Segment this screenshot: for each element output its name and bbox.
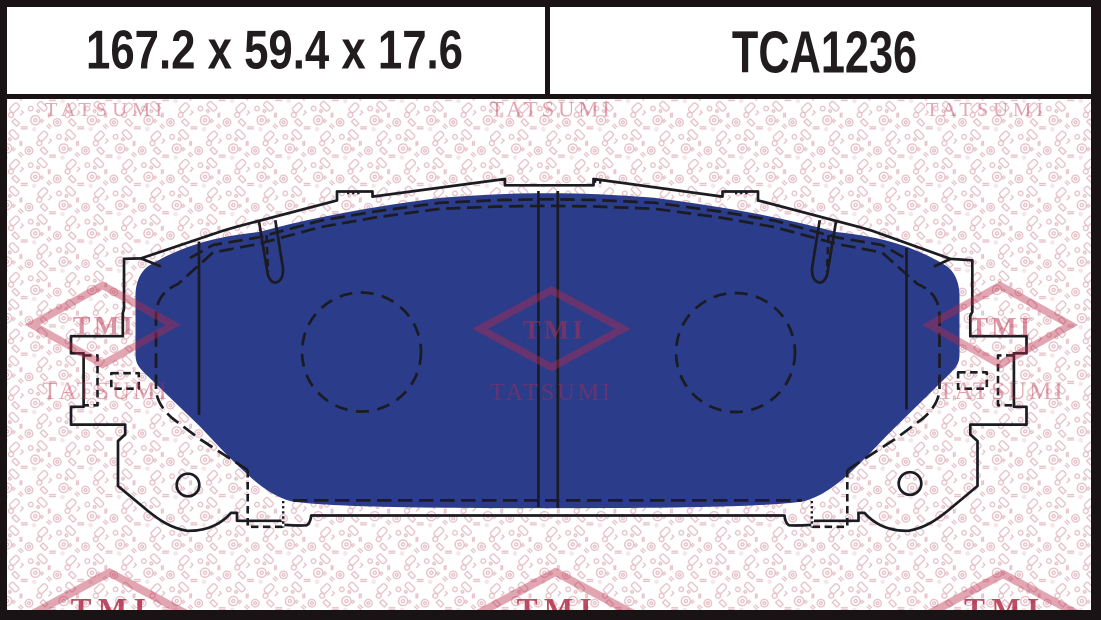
svg-text:TATSUMI: TATSUMI <box>490 97 614 122</box>
svg-text:TATSUMI: TATSUMI <box>42 378 169 405</box>
svg-text:TMI: TMI <box>523 315 587 345</box>
svg-text:167.2 x 59.4 x 17.6: 167.2 x 59.4 x 17.6 <box>86 20 463 81</box>
svg-text:TATSUMI: TATSUMI <box>926 99 1048 121</box>
svg-text:TMI: TMI <box>73 311 137 341</box>
svg-text:TATSUMI: TATSUMI <box>938 378 1065 405</box>
svg-text:TATSUMI: TATSUMI <box>490 380 613 406</box>
svg-text:TATSUMI: TATSUMI <box>45 99 167 121</box>
svg-text:TCA1236: TCA1236 <box>732 19 917 85</box>
svg-text:TMI: TMI <box>970 312 1034 342</box>
